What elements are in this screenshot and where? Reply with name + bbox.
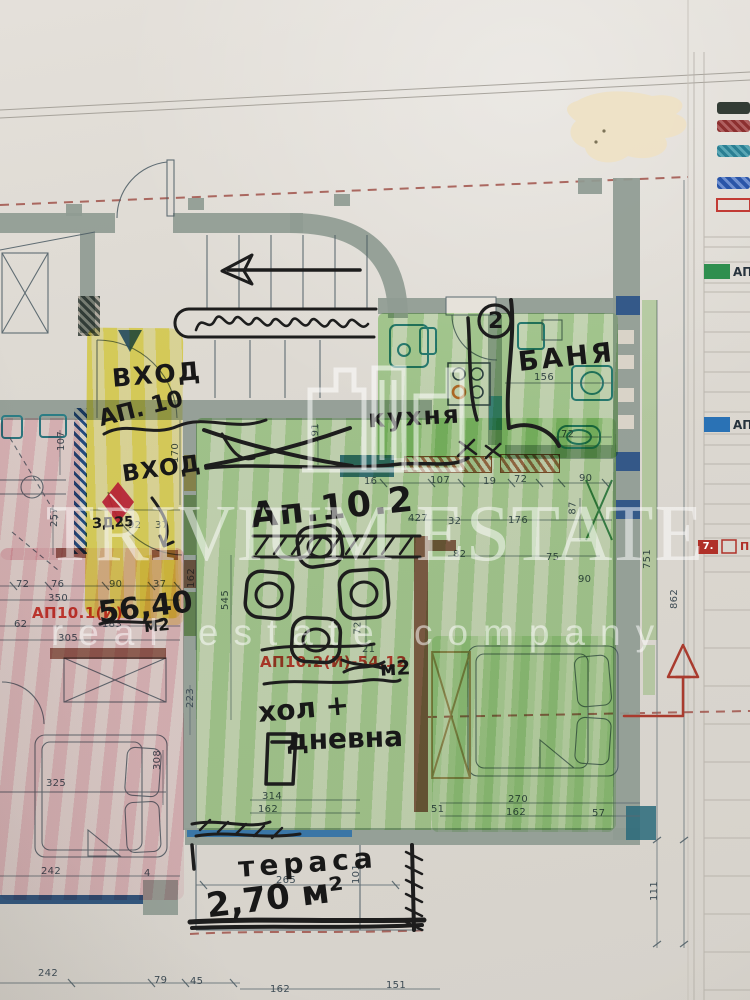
circled-note-value: 2 — [488, 309, 503, 334]
crossed-cabinets — [204, 428, 468, 468]
stairs-arrow — [222, 255, 360, 284]
door-code-note: ЗД25 — [92, 514, 135, 532]
floor-plan-photo: АП1 АП 7. П АП10.1(И) АП10.2(И)-54,12 17… — [0, 0, 750, 1000]
apartment-102-area-unit: м2 — [379, 655, 410, 681]
apartment-101-area-unit: м2 — [143, 615, 170, 637]
living-room-label-2: дневна — [285, 720, 403, 757]
stairs-scribble-band — [175, 309, 376, 337]
kitchen-strokes — [458, 300, 559, 458]
kitchen-label: кухня — [367, 400, 461, 434]
north-arrow — [624, 645, 698, 716]
dining-set — [244, 523, 420, 663]
